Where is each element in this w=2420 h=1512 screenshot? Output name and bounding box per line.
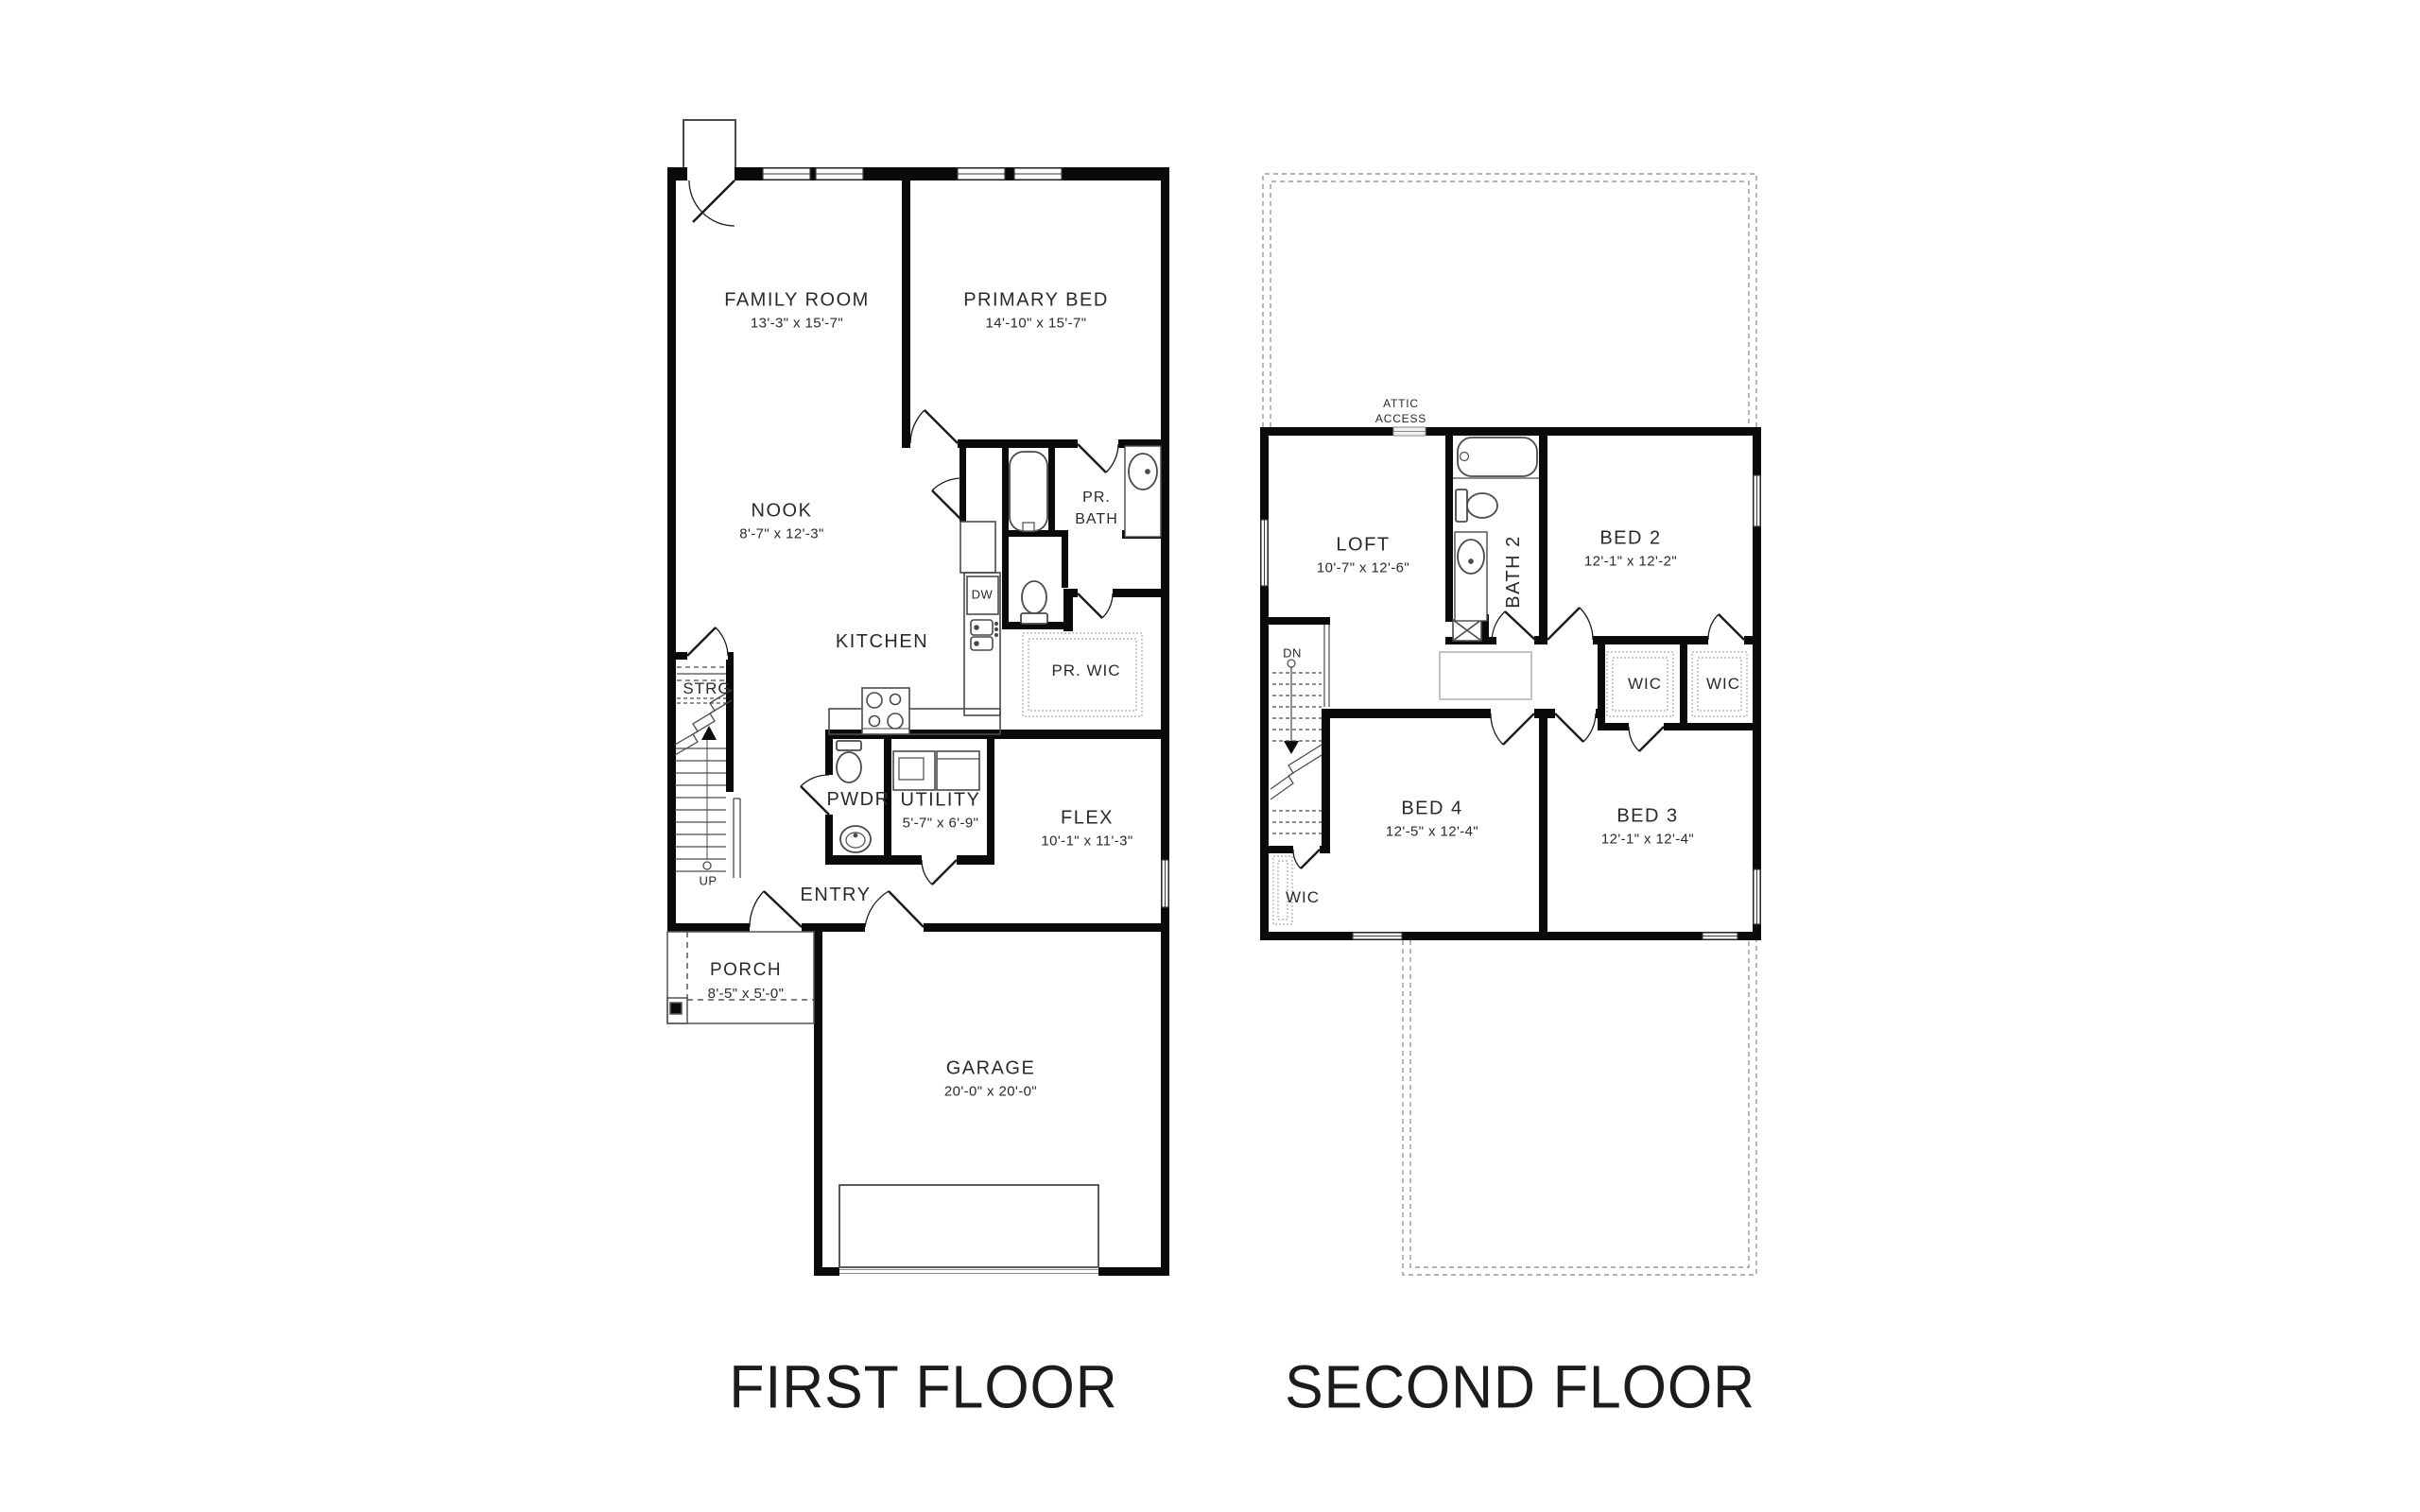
stoop-outline bbox=[683, 120, 735, 172]
tub-icon bbox=[1458, 438, 1537, 476]
bath2-fixtures bbox=[1453, 438, 1539, 621]
room-label-pwdr: PWDR bbox=[826, 787, 890, 812]
floor-plan-drawing bbox=[0, 0, 2420, 1512]
washer-dryer-icons bbox=[893, 751, 979, 790]
toilet-icon bbox=[1456, 490, 1497, 522]
room-label-loft: LOFT 10'-7" x 12'-6" bbox=[1317, 532, 1409, 577]
room-label-utility: UTILITY 5'-7" x 6'-9" bbox=[901, 787, 981, 833]
room-label-bath2: BATH 2 bbox=[1501, 535, 1526, 609]
room-label-primary-bed: PRIMARY BED 14'-10" x 15'-7" bbox=[963, 287, 1109, 333]
room-label-bed2: BED 2 12'-1" x 12'-2" bbox=[1584, 525, 1677, 571]
kitchen-fixtures bbox=[829, 522, 1000, 734]
room-label-entry: ENTRY bbox=[801, 883, 872, 907]
garage-door bbox=[839, 1185, 1098, 1274]
second-floor-plan bbox=[1260, 174, 1761, 1275]
room-label-garage: GARAGE 20'-0" x 20'-0" bbox=[944, 1056, 1037, 1101]
fridge-icon bbox=[960, 522, 995, 573]
bath-sink-icon bbox=[1125, 446, 1161, 537]
label-dishwasher: DW bbox=[972, 588, 994, 604]
room-label-wic-bed3: WIC bbox=[1706, 674, 1740, 695]
toilet-icon bbox=[1021, 581, 1047, 624]
attic-access-hatch bbox=[1393, 427, 1426, 436]
room-label-kitchen: KITCHEN bbox=[836, 629, 928, 654]
toilet-icon bbox=[837, 741, 861, 782]
second-floor-title: SECOND FLOOR bbox=[1285, 1348, 1755, 1426]
label-stairs-up: UP bbox=[699, 874, 717, 890]
first-floor-title: FIRST FLOOR bbox=[729, 1348, 1117, 1426]
label-stairs-down: DN bbox=[1283, 646, 1302, 662]
room-label-family-room: FAMILY ROOM 13'-3" x 15'-7" bbox=[724, 287, 870, 333]
room-label-wic-bed4: WIC bbox=[1286, 887, 1320, 908]
room-label-nook: NOOK 8'-7" x 12'-3" bbox=[739, 498, 824, 543]
linen-closet-icon bbox=[1453, 620, 1481, 641]
room-label-strg: STRG bbox=[683, 679, 731, 699]
room-label-wic-bed2: WIC bbox=[1628, 674, 1662, 695]
room-label-flex: FLEX 10'-1" x 11'-3" bbox=[1041, 805, 1132, 850]
stove-icon bbox=[862, 688, 909, 734]
room-label-bed4: BED 4 12'-5" x 12'-4" bbox=[1386, 796, 1478, 841]
first-floor-walls bbox=[667, 167, 1169, 1276]
room-label-pr-wic: PR. WIC bbox=[1051, 661, 1120, 681]
room-label-bed3: BED 3 12'-1" x 12'-4" bbox=[1601, 803, 1694, 849]
bath-sink-icon bbox=[1455, 532, 1487, 621]
label-attic-access: ATTIC ACCESS bbox=[1375, 396, 1426, 426]
room-label-pr-bath: PR. BATH bbox=[1075, 487, 1117, 530]
room-label-porch: PORCH 8'-5" x 5'-0" bbox=[708, 959, 785, 1003]
round-sink-icon bbox=[840, 826, 871, 852]
hall-opening-outline bbox=[1440, 652, 1531, 699]
floor-plan-page: FAMILY ROOM 13'-3" x 15'-7" PRIMARY BED … bbox=[0, 0, 2420, 1512]
tub-icon bbox=[1010, 452, 1047, 531]
kitchen-sink-icon bbox=[971, 620, 997, 650]
